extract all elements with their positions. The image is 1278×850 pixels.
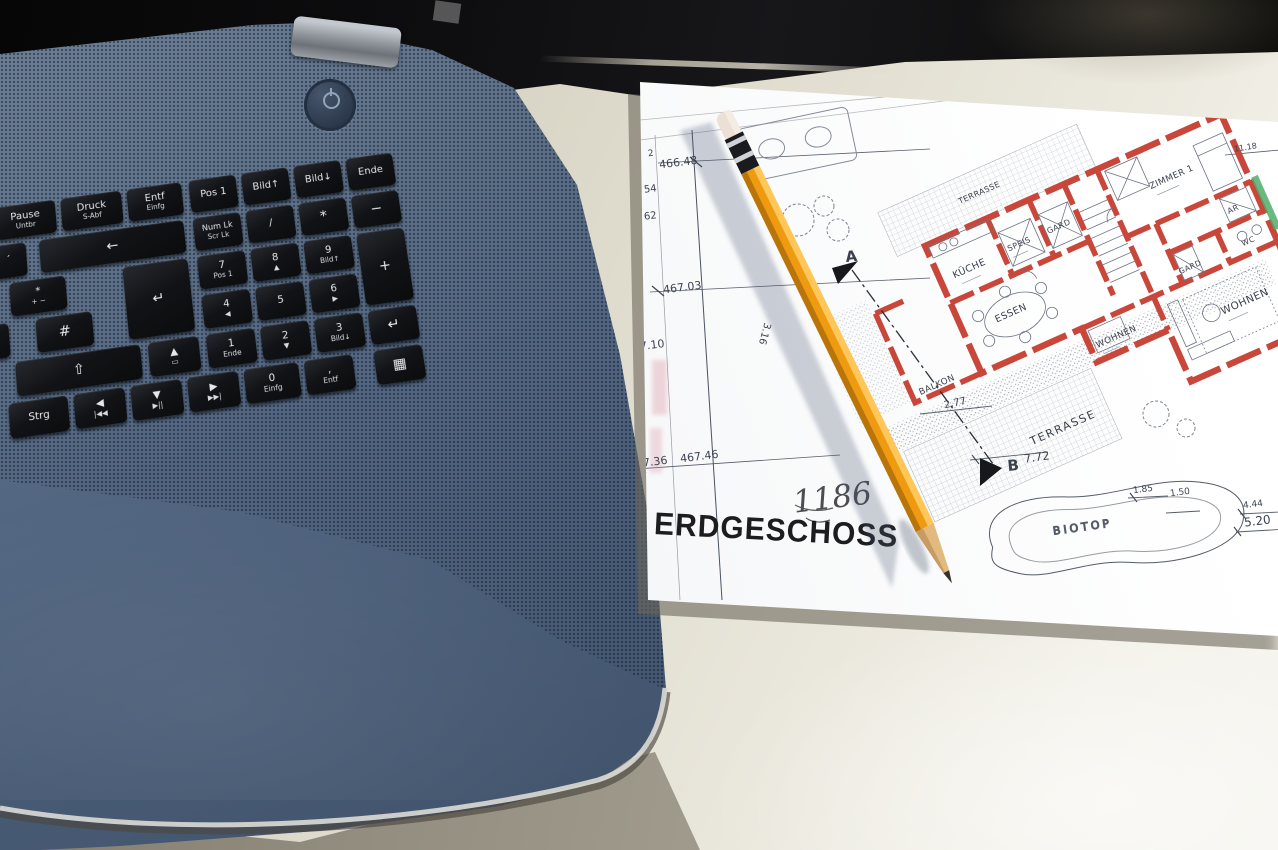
room-label-terrasse-bottom: TERRASSE — [1027, 407, 1098, 448]
key-bild-up[interactable]: Bild↑ — [241, 167, 292, 206]
pencil-body-shade — [741, 172, 921, 532]
dimension-label: 1.85 — [1132, 484, 1153, 496]
dimension-label: 5.20 — [1243, 512, 1271, 529]
key-np-plus[interactable]: + — [356, 227, 414, 305]
pencil-body — [741, 166, 933, 532]
pencil-ferrule — [725, 131, 760, 174]
dimension-label: 1.50 — [1169, 487, 1190, 499]
key-arrow-up[interactable]: ▲▭ — [147, 336, 201, 378]
key-ende[interactable]: Ende — [345, 153, 396, 191]
key-enter-main[interactable]: ↵ — [122, 258, 195, 340]
key-np0[interactable]: 0Einfg — [243, 362, 302, 405]
dimension-label: 11.18 — [1233, 141, 1257, 153]
key-ae[interactable]: Ä — [0, 323, 11, 363]
pencil-ferrule-band — [726, 135, 746, 148]
key-pause[interactable]: PauseUntbr — [0, 200, 57, 241]
key-np6[interactable]: 6▶ — [308, 273, 360, 313]
key-np-divide[interactable]: / — [245, 204, 296, 243]
dimension-label: 467.03 — [662, 279, 702, 297]
room-label-gard2: GARD — [1177, 258, 1202, 276]
pencil-ferrule-band — [734, 150, 754, 163]
key-calculator[interactable]: ▦ — [373, 344, 427, 385]
key-np7[interactable]: 7Pos 1 — [197, 250, 249, 290]
room-label-speis: SPEIS — [1006, 235, 1032, 253]
key-np2[interactable]: 2▼ — [260, 320, 313, 361]
key-arrow-down[interactable]: ▼▶|| — [130, 379, 185, 421]
key-np3[interactable]: 3Bild↓ — [314, 312, 367, 353]
room-label-zimmer1: ZIMMER 1 — [1148, 164, 1195, 192]
room-label-essen: ESSEN — [994, 302, 1029, 326]
key-pos1[interactable]: Pos 1 — [188, 174, 239, 213]
section-marker-a-triangle — [832, 261, 858, 284]
garden-table — [737, 106, 858, 182]
key-hash[interactable]: # — [35, 311, 94, 353]
dimension-label: 3.16 — [756, 321, 772, 345]
dimension-label: 62 — [643, 210, 657, 222]
screen-hinge-bracket — [433, 0, 462, 23]
green-marker — [1251, 175, 1278, 231]
pencil-wood — [916, 523, 955, 576]
plan-title: ERDGESCHOSS — [653, 507, 899, 555]
biotop-pond: BIOTOP — [985, 470, 1250, 585]
palm-rest — [0, 470, 680, 800]
section-marker-b: B — [1007, 456, 1020, 475]
room-label-wc: WC — [1240, 234, 1256, 248]
key-arrow-right[interactable]: ▶▶▶| — [187, 371, 242, 413]
pencil-tip — [943, 570, 954, 584]
key-np4[interactable]: 4◀ — [201, 288, 253, 328]
dimension-label: 54 — [643, 183, 657, 195]
key-np-comma[interactable]: ,Entf — [303, 354, 356, 396]
area-notes — [961, 179, 1248, 414]
interior-lines — [928, 118, 1278, 439]
key-druck[interactable]: DruckS-Abf — [60, 190, 124, 231]
section-marker-a: A — [845, 247, 859, 266]
key-entf-einfg[interactable]: EntfEinfg — [126, 182, 184, 222]
power-icon — [323, 92, 340, 109]
key-strg[interactable]: Strg — [8, 395, 70, 439]
handwritten-number: 1186 — [791, 475, 874, 520]
pencil-eraser — [714, 108, 743, 143]
power-button[interactable] — [304, 79, 356, 131]
key-arrow-left[interactable]: ◀|◀◀ — [73, 387, 127, 429]
room-label-gard1: GARD — [1046, 217, 1072, 235]
dimension-label: 467.46 — [679, 448, 719, 466]
key-np5[interactable]: 5 — [255, 281, 307, 321]
key-np1[interactable]: 1Ende — [206, 328, 258, 369]
dimension-label: 2 — [647, 149, 654, 160]
room-label-terrasse-top: TERRASSE — [956, 180, 1001, 207]
key-np9[interactable]: 9Bild↑ — [303, 235, 355, 275]
pencil-eraser-highlight — [724, 108, 743, 138]
room-labels: KÜCHE SPEIS GARD ZIMMER 1 ESSEN WOHNEN A… — [853, 94, 1278, 481]
room-label-ar: AR — [1226, 203, 1241, 216]
pencil-wood-shade — [916, 528, 945, 576]
room-label-kueche: KÜCHE — [950, 255, 987, 281]
room-label-wohnen2: WOHNEN — [1219, 286, 1270, 318]
section-marker-b-triangle — [980, 458, 1002, 486]
key-np-enter[interactable]: ↵ — [367, 304, 420, 345]
dimension-label: 4.44 — [1242, 499, 1263, 511]
dimension-label: 2.77 — [943, 396, 967, 411]
pencil-body-highlight — [753, 166, 933, 527]
red-walls — [859, 114, 1278, 487]
key-numlock[interactable]: Num LkScr Lk — [192, 212, 243, 251]
pencil-contact-shadow — [894, 516, 935, 577]
key-acute[interactable]: ´ — [0, 242, 28, 280]
room-label-balkon: BALKON — [918, 373, 957, 398]
key-np8[interactable]: 8▲ — [250, 242, 302, 282]
key-bild-down[interactable]: Bild↓ — [293, 160, 344, 198]
dark-object-highlight — [950, 0, 1278, 95]
tree-symbols — [782, 196, 1195, 437]
key-np-multiply[interactable]: * — [298, 197, 350, 236]
room-label-wohnen1: WOHNEN — [1095, 324, 1139, 351]
key-np-minus[interactable]: − — [351, 190, 403, 229]
key-plus-main[interactable]: *+ ~ — [9, 275, 68, 316]
photo-scene: PauseUntbr DruckS-Abf EntfEinfg Pos 1 Bi… — [0, 0, 1278, 850]
section-line — [852, 270, 996, 468]
dimension-label: 7.72 — [1023, 448, 1050, 465]
dimension-label: 466.48 — [658, 154, 698, 172]
room-label-biotop: BIOTOP — [1052, 517, 1113, 538]
